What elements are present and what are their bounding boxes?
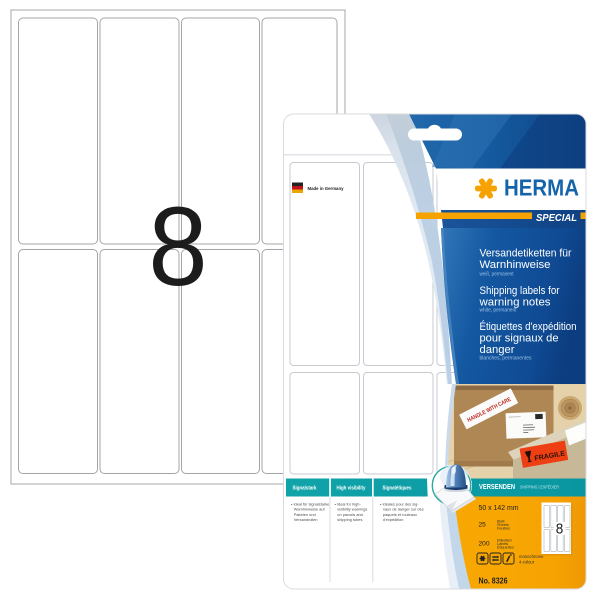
svg-text:SHIPPING | EXPÉDIER: SHIPPING | EXPÉDIER	[520, 484, 559, 489]
svg-text:Versandrollen: Versandrollen	[294, 517, 318, 522]
svg-text:8: 8	[148, 185, 207, 310]
svg-text:white, permanent: white, permanent	[479, 308, 517, 314]
svg-text:VERSENDEN: VERSENDEN	[479, 482, 515, 491]
svg-text:monochrome: monochrome	[519, 554, 544, 559]
svg-text:Étiquettes d'expédition: Étiquettes d'expédition	[480, 320, 577, 333]
svg-text:No. 8326: No. 8326	[479, 577, 508, 586]
svg-text:blanches, permanentes: blanches, permanentes	[480, 356, 532, 362]
svg-text:danger: danger	[480, 344, 515, 356]
svg-text:Shipping labels for: Shipping labels for	[480, 285, 560, 297]
svg-text:200: 200	[479, 540, 490, 547]
svg-text:Made in Germany: Made in Germany	[308, 186, 344, 191]
svg-text:Versandetiketten für: Versandetiketten für	[480, 248, 572, 260]
svg-text:50 x 142 mm: 50 x 142 mm	[479, 503, 519, 512]
svg-text:pour signaux de: pour signaux de	[480, 333, 559, 345]
svg-text:High visibility: High visibility	[337, 486, 366, 492]
svg-text:25: 25	[479, 521, 487, 528]
svg-text:8: 8	[556, 521, 564, 538]
svg-text:Étiquettes: Étiquettes	[497, 545, 514, 550]
svg-text:4-colour: 4-colour	[519, 560, 535, 565]
svg-text:shipping tubes: shipping tubes	[337, 517, 362, 522]
svg-text:SPECIAL: SPECIAL	[536, 213, 577, 224]
svg-text:Signalstark: Signalstark	[293, 486, 317, 492]
svg-text:d'expédition: d'expédition	[383, 517, 404, 522]
svg-text:weiß, permanent: weiß, permanent	[479, 272, 514, 278]
svg-text:Warnhinweise: Warnhinweise	[480, 259, 551, 271]
svg-text:HERMA: HERMA	[504, 175, 579, 201]
svg-text:Signalétiques: Signalétiques	[383, 486, 412, 492]
svg-text:Feuilles: Feuilles	[497, 527, 510, 531]
